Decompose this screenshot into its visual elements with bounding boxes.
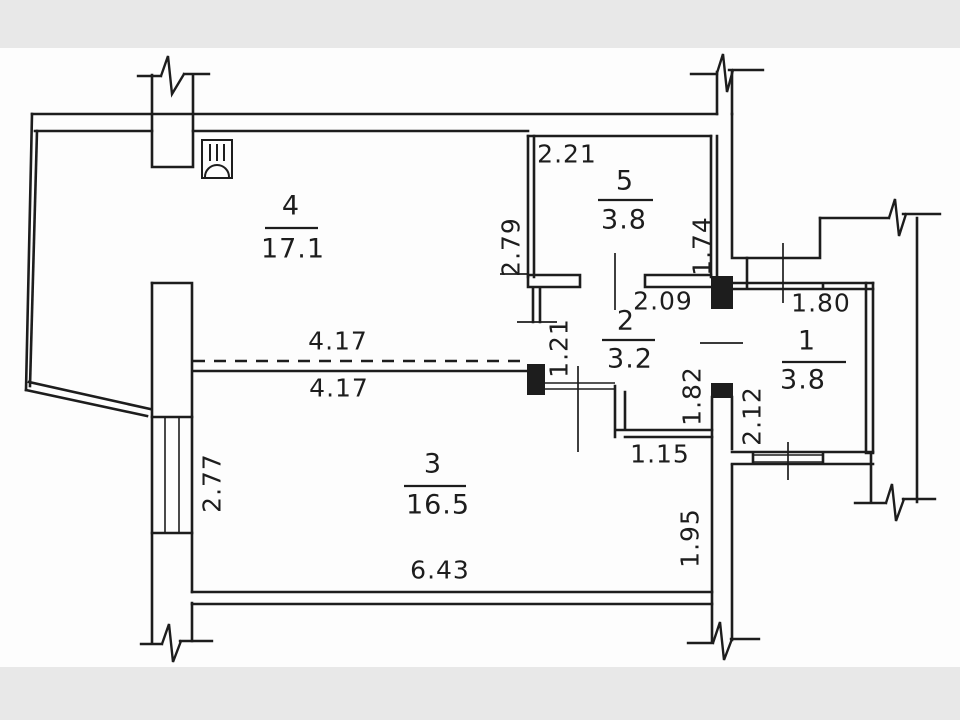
room-3-area: 16.5 [406, 492, 470, 519]
room-1-number: 1 [798, 328, 816, 355]
room-4-number: 4 [282, 193, 300, 220]
dimension-1-15: 1.15 [630, 442, 690, 467]
dimension-1-21: 1.21 [547, 318, 572, 378]
dimension-4-17-lower: 4.17 [309, 376, 369, 401]
dimension-1-74: 1.74 [690, 216, 715, 276]
dimension-1-82: 1.82 [680, 366, 705, 426]
room-5-number: 5 [616, 168, 634, 195]
dimension-2-21: 2.21 [537, 142, 597, 167]
room-4-area: 17.1 [261, 236, 325, 263]
floor-plan-linework [0, 0, 960, 720]
dimension-4-17-upper: 4.17 [308, 329, 368, 354]
room-2-area: 3.2 [607, 346, 653, 373]
dimension-2-12: 2.12 [740, 386, 765, 446]
floor-plan-image: 4 17.1 5 3.8 2 3.2 1 3.8 3 16.5 2.21 2.7… [0, 0, 960, 720]
dimension-2-79: 2.79 [499, 217, 524, 277]
ventilation-duct-icon [202, 140, 232, 178]
thin-partition [545, 383, 615, 389]
dimension-1-95: 1.95 [678, 508, 703, 568]
walls [26, 72, 917, 643]
room-1-area: 3.8 [780, 367, 826, 394]
dimension-6-43: 6.43 [410, 558, 470, 583]
dimension-2-77: 2.77 [200, 453, 225, 513]
dimension-1-80: 1.80 [791, 291, 851, 316]
room-3-number: 3 [424, 451, 442, 478]
room-5-area: 3.8 [601, 207, 647, 234]
window-symbols [165, 283, 823, 533]
dimension-2-09: 2.09 [633, 289, 693, 314]
